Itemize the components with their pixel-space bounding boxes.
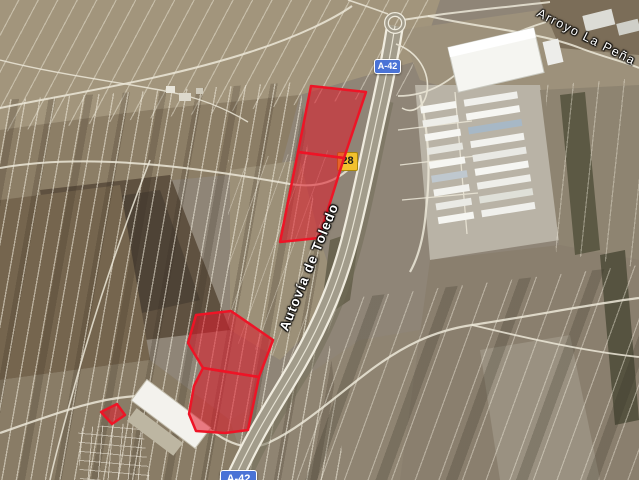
highlighted-parcel-north-lower[interactable] — [280, 152, 344, 242]
route-badge-a42-top: A-42 — [374, 59, 401, 74]
satellite-map[interactable]: 28 Autovía de Toledo Arroyo La Peña A-42… — [0, 0, 639, 480]
highlighted-parcel-south-upper[interactable] — [188, 311, 273, 377]
highlighted-parcel-south-lower[interactable] — [189, 368, 259, 433]
highlighted-parcel-west-small[interactable] — [101, 404, 125, 424]
parcel-overlays — [0, 0, 639, 480]
highlighted-parcels — [101, 86, 366, 433]
highlighted-parcel-north-upper[interactable] — [298, 86, 366, 158]
route-badge-a42-bottom: A-42 — [220, 470, 257, 480]
